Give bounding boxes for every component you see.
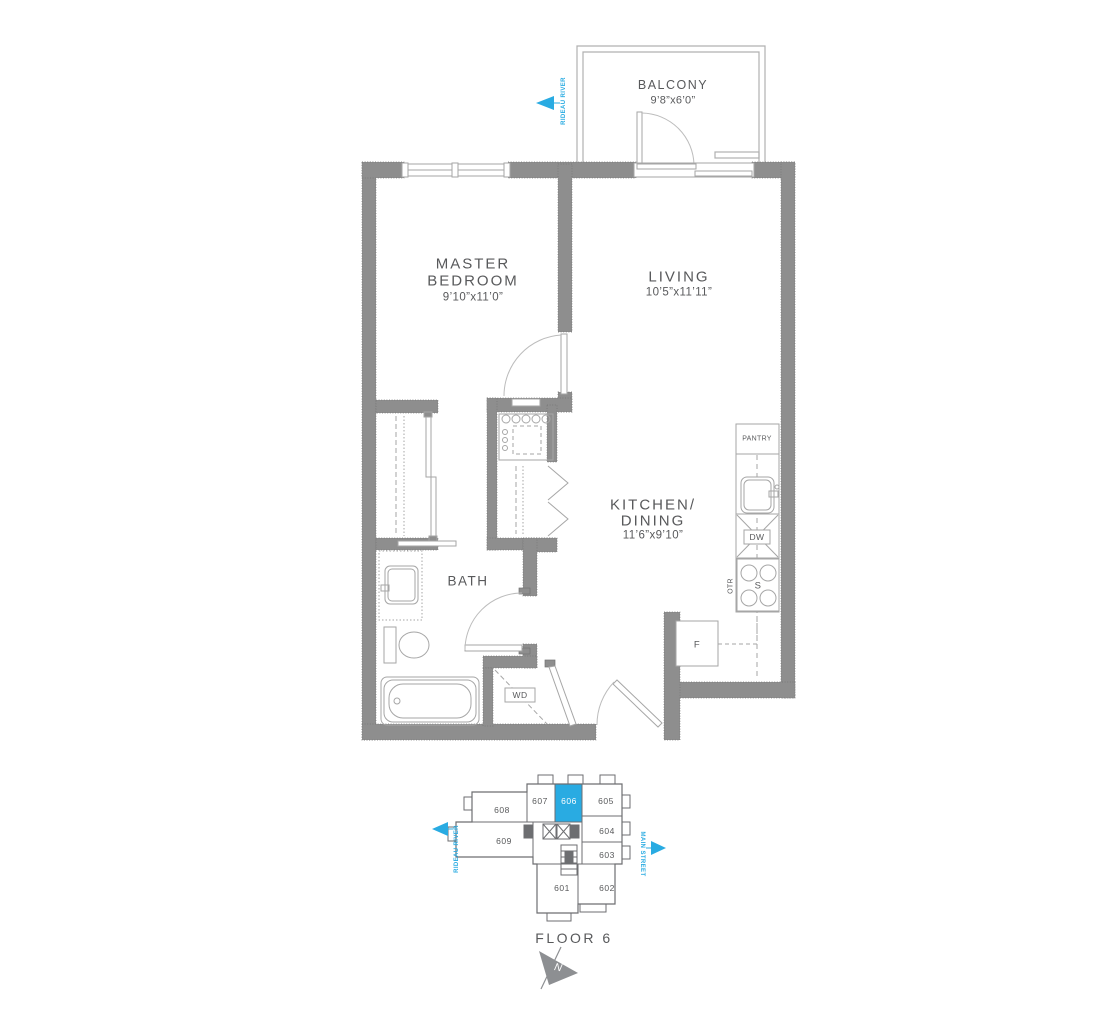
master-bedroom-label-line1: MASTER bbox=[436, 257, 511, 272]
rideau-river-arrow-top bbox=[536, 96, 560, 110]
upper-cabinet-line bbox=[718, 613, 757, 644]
balcony-door bbox=[637, 112, 694, 165]
main-street-label-keyplan: MAIN STREET bbox=[639, 831, 645, 876]
entry-door bbox=[597, 680, 662, 727]
kitchen-dining-dim: 11’6”x9’10” bbox=[623, 530, 683, 542]
balcony-label: BALCONY bbox=[638, 79, 708, 92]
floor-label: FLOOR 6 bbox=[535, 931, 612, 945]
bifold-door-lower bbox=[548, 502, 568, 536]
balcony-dim: 9’8”x6’0” bbox=[651, 96, 696, 107]
dishwasher-label: DW bbox=[750, 533, 765, 542]
bath-door bbox=[465, 593, 522, 651]
stairwell bbox=[561, 845, 577, 875]
master-bedroom-dim: 9’10”x11’0” bbox=[443, 292, 503, 304]
linen-closet bbox=[516, 466, 568, 536]
living-dim: 10’5”x11’11” bbox=[646, 287, 712, 299]
unit-walls bbox=[362, 162, 795, 740]
bedroom-door bbox=[504, 334, 567, 396]
bath-sink bbox=[385, 566, 418, 604]
tub-drain bbox=[394, 698, 400, 704]
living-label: LIVING bbox=[648, 270, 709, 285]
keyplan-unit-608: 608 bbox=[494, 806, 510, 815]
kitchen-dining-label-line1: KITCHEN/ bbox=[610, 498, 696, 513]
keyplan-unit-605: 605 bbox=[598, 797, 614, 806]
elevator-core bbox=[524, 824, 579, 839]
wardrobe-closet bbox=[396, 412, 456, 546]
fridge-label: F bbox=[694, 640, 700, 650]
orientation-arrows bbox=[432, 96, 666, 855]
bedroom-window bbox=[402, 163, 510, 177]
floorplan-linework bbox=[0, 0, 1100, 1024]
rideau-river-arrow-keyplan bbox=[432, 822, 453, 836]
balcony-slider-window bbox=[634, 163, 754, 177]
keyplan-unit-604: 604 bbox=[599, 827, 615, 836]
toilet-bowl bbox=[399, 632, 429, 658]
keyplan-unit-609: 609 bbox=[496, 837, 512, 846]
pantry-label: PANTRY bbox=[742, 436, 772, 443]
main-street-arrow-keyplan bbox=[646, 841, 666, 855]
keyplan-unit-603: 603 bbox=[599, 851, 615, 860]
keyplan-unit-607: 607 bbox=[532, 797, 548, 806]
master-bedroom-label-line2: BEDROOM bbox=[427, 274, 519, 289]
rideau-river-label-keyplan: RIDEAU RIVER bbox=[454, 825, 460, 873]
toilet-tank bbox=[384, 627, 396, 663]
otr-label: OTR bbox=[728, 578, 735, 594]
wd-door-leaf bbox=[549, 666, 576, 726]
stove-label: S bbox=[755, 581, 762, 591]
keyplan-unit-601: 601 bbox=[554, 884, 570, 893]
washer-dryer-closet bbox=[495, 666, 576, 726]
floorplan-page: BALCONY 9’8”x6’0” MASTER BEDROOM 9’10”x1… bbox=[0, 0, 1100, 1024]
kitchen-dining-label-line2: DINING bbox=[621, 514, 686, 529]
kitchen-fixtures bbox=[676, 424, 779, 680]
keyplan-unit-606-highlighted: 606 bbox=[561, 797, 577, 806]
rideau-river-label-top: RIDEAU RIVER bbox=[561, 77, 567, 125]
keyplan-unit-602: 602 bbox=[599, 884, 615, 893]
bifold-door-upper bbox=[548, 466, 568, 500]
washer-dryer-label: WD bbox=[513, 691, 528, 700]
bath-label: BATH bbox=[447, 574, 488, 588]
north-letter: N bbox=[553, 962, 563, 974]
